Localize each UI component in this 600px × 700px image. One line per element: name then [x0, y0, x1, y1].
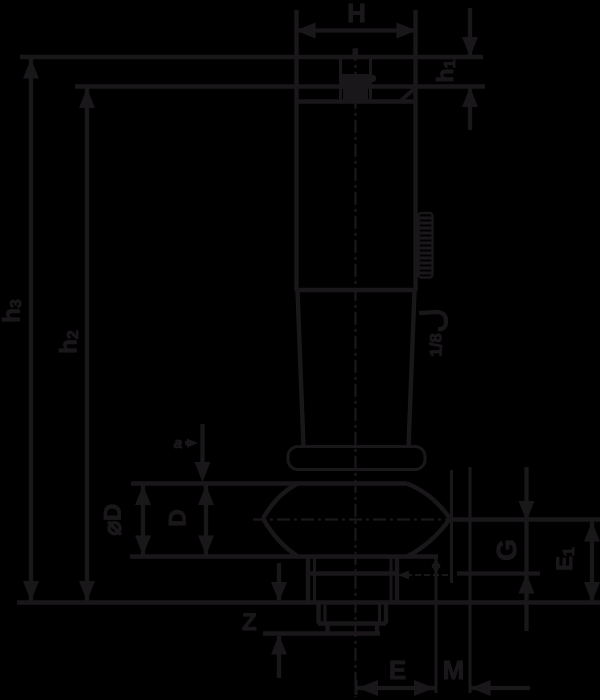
svg-text:⌀D: ⌀D: [99, 504, 126, 536]
svg-text:H: H: [347, 0, 366, 28]
svg-text:M: M: [443, 655, 465, 685]
svg-text:a: a: [174, 435, 182, 452]
svg-text:Z: Z: [242, 609, 257, 636]
svg-text:1/8: 1/8: [426, 333, 445, 357]
svg-text:E: E: [389, 655, 406, 685]
svg-text:D: D: [164, 509, 191, 526]
svg-text:G: G: [491, 539, 522, 561]
